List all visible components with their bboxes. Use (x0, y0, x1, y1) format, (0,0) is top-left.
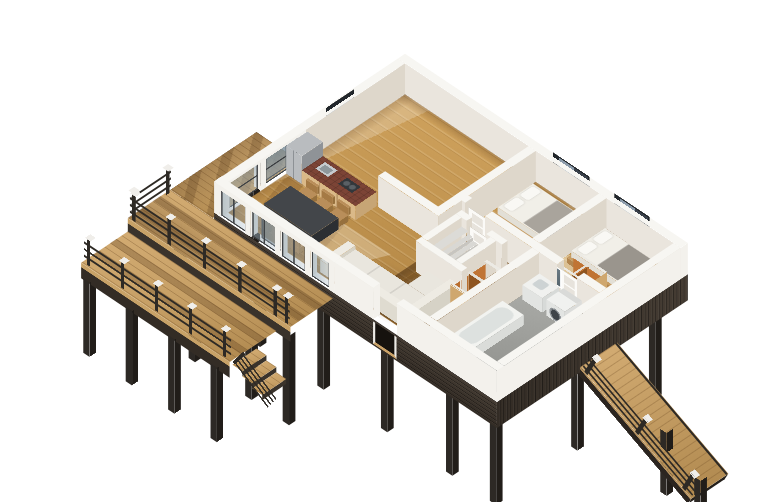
rail-west-post-0-cap (162, 164, 173, 172)
stilt-4-e (496, 419, 502, 502)
rail-lower-post-2 (155, 283, 159, 312)
rail-upper-post-0 (132, 193, 136, 222)
rail-lower-post-1 (121, 261, 125, 290)
floorplan-render-canvas (0, 0, 781, 502)
stilt-14-e (174, 335, 180, 414)
rail-upper-post-1 (167, 217, 171, 246)
stilt-2-e (387, 346, 393, 432)
slider-post-west-1-side (261, 156, 267, 191)
stilt-13-e (132, 307, 138, 386)
stilt-1-e (324, 304, 330, 390)
rail-lower-post-0 (87, 238, 91, 267)
wall-south-a-side (373, 283, 380, 319)
stilt-3-e (452, 390, 458, 476)
stilt-15-e (217, 364, 223, 443)
dining-chair-n1-back-side (333, 196, 335, 205)
stilt-12-e (90, 278, 96, 357)
rail-lower-post-4 (223, 329, 227, 358)
rail-upper-post-4 (273, 288, 277, 317)
dining-chair-n2-back-side (348, 206, 350, 215)
stilt-6-e (655, 313, 661, 399)
stilt-11-e (289, 332, 295, 425)
rail-lower-post-3 (189, 306, 193, 335)
dining-chair-n0-back-side (317, 186, 319, 195)
stilt-17-e (701, 477, 707, 502)
